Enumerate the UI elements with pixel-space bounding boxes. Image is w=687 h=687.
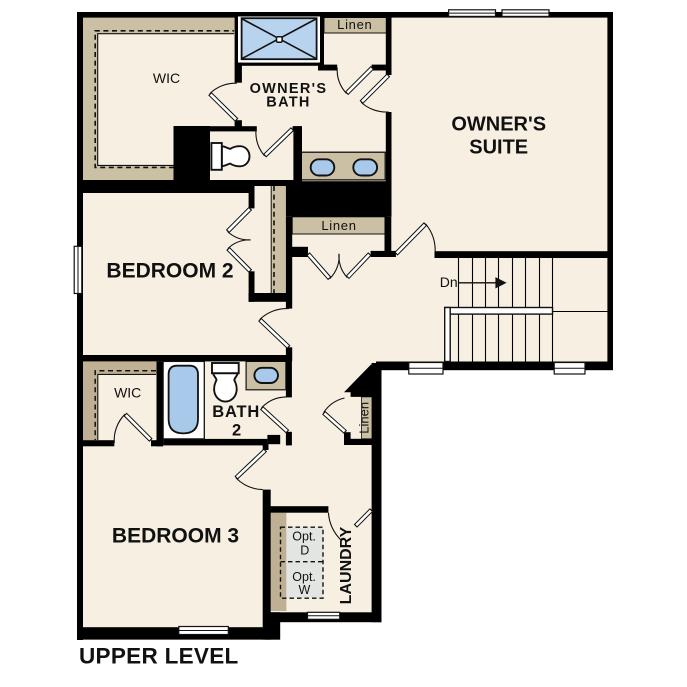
svg-text:OWNER'S: OWNER'S <box>451 114 546 136</box>
svg-text:Opt.: Opt. <box>292 529 316 543</box>
svg-text:Linen: Linen <box>321 218 356 233</box>
svg-text:W: W <box>298 583 310 597</box>
svg-text:BEDROOM 2: BEDROOM 2 <box>106 260 233 283</box>
svg-text:WIC: WIC <box>114 384 141 400</box>
svg-text:Dn: Dn <box>440 274 458 290</box>
svg-text:SUITE: SUITE <box>469 137 528 159</box>
svg-text:LAUNDRY: LAUNDRY <box>338 526 355 604</box>
svg-text:2: 2 <box>232 422 241 440</box>
svg-text:D: D <box>300 544 309 558</box>
svg-text:WIC: WIC <box>153 70 180 86</box>
svg-text:Opt.: Opt. <box>292 570 316 584</box>
svg-text:UPPER LEVEL: UPPER LEVEL <box>79 644 239 669</box>
svg-text:Linen: Linen <box>337 17 372 32</box>
svg-text:BEDROOM 3: BEDROOM 3 <box>112 525 239 548</box>
svg-text:BATH: BATH <box>266 94 310 110</box>
svg-text:BATH: BATH <box>212 403 260 421</box>
svg-text:Linen: Linen <box>357 402 372 434</box>
